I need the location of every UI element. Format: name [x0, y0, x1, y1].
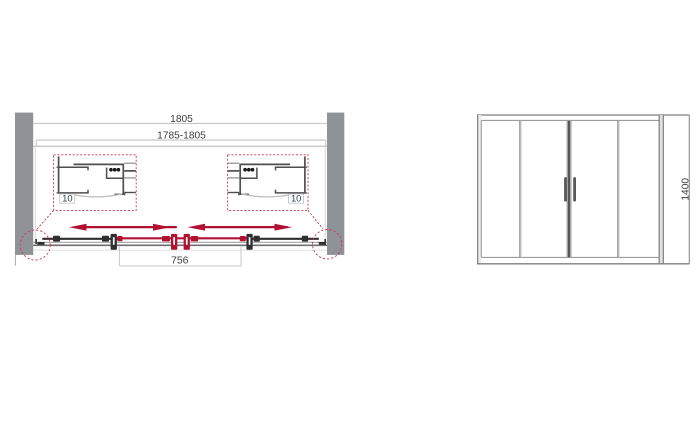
svg-text:1400: 1400 — [681, 178, 692, 201]
svg-text:1805: 1805 — [170, 114, 193, 125]
svg-text:756: 756 — [171, 256, 189, 267]
svg-text:10: 10 — [291, 193, 301, 204]
svg-text:10: 10 — [62, 193, 72, 204]
